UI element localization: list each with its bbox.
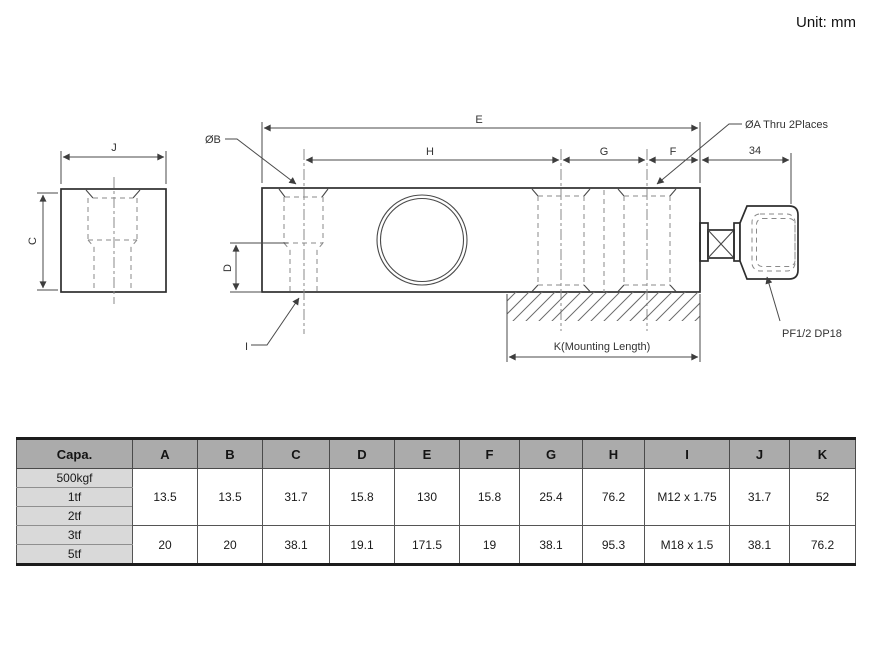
capacity-cell: 5tf (17, 545, 133, 565)
dim-label-k: K(Mounting Length) (554, 341, 651, 353)
value-cell: 130 (395, 469, 460, 526)
table-row: 3tf 20 20 38.1 19.1 171.5 19 38.1 95.3 M… (17, 526, 856, 545)
callout-pf: PF1/2 DP18 (767, 277, 842, 340)
col-header-i: I (645, 439, 730, 469)
value-cell: 31.7 (730, 469, 790, 526)
callout-label-i: I (245, 341, 248, 353)
technical-drawing: J C (0, 0, 870, 430)
datasheet-page: Unit: mm J C (0, 0, 870, 652)
value-cell: 76.2 (583, 469, 645, 526)
value-cell: 31.7 (263, 469, 330, 526)
value-cell: 95.3 (583, 526, 645, 565)
col-header-j: J (730, 439, 790, 469)
value-cell: 76.2 (790, 526, 856, 565)
dim-label-h: H (426, 146, 434, 158)
callout-label-pf: PF1/2 DP18 (782, 328, 842, 340)
value-cell: 52 (790, 469, 856, 526)
dim-label-g: G (600, 146, 609, 158)
dimension-e: E (262, 114, 700, 183)
dim-label-34: 34 (749, 145, 761, 157)
dimension-34: 34 (702, 145, 791, 204)
col-header-d: D (330, 439, 395, 469)
dim-label-e: E (475, 114, 482, 126)
callout-oa: ØA Thru 2Places (657, 119, 828, 184)
value-cell: 15.8 (460, 469, 520, 526)
side-view (262, 149, 725, 334)
capacity-cell: 2tf (17, 507, 133, 526)
left-end-view: J C (27, 142, 166, 304)
col-header-capa: Capa. (17, 439, 133, 469)
value-cell: 38.1 (730, 526, 790, 565)
col-header-g: G (520, 439, 583, 469)
value-cell: M12 x 1.75 (645, 469, 730, 526)
dimension-f: F (649, 146, 698, 160)
callout-ob: ØB (205, 134, 296, 184)
dim-label-f: F (670, 146, 677, 158)
dimension-g: G (563, 146, 645, 160)
cable-connector (700, 206, 798, 279)
dimension-c: C (27, 193, 58, 290)
value-cell: 20 (198, 526, 263, 565)
dimension-k: K(Mounting Length) (507, 294, 700, 362)
value-cell: 15.8 (330, 469, 395, 526)
dimension-table: Capa. A B C D E F G H I J K 500kgf 13.5 … (16, 437, 856, 566)
callout-i: I (245, 298, 299, 353)
callout-label-oa: ØA Thru 2Places (745, 119, 828, 131)
value-cell: 19 (460, 526, 520, 565)
capacity-cell: 500kgf (17, 469, 133, 488)
col-header-b: B (198, 439, 263, 469)
col-header-c: C (263, 439, 330, 469)
col-header-k: K (790, 439, 856, 469)
capacity-cell: 3tf (17, 526, 133, 545)
dim-label-c: C (27, 237, 39, 245)
value-cell: 38.1 (520, 526, 583, 565)
dim-label-d: D (222, 264, 234, 272)
value-cell: 13.5 (198, 469, 263, 526)
col-header-h: H (583, 439, 645, 469)
value-cell: 20 (133, 526, 198, 565)
value-cell: 171.5 (395, 526, 460, 565)
hatching (486, 291, 725, 322)
value-cell: 19.1 (330, 526, 395, 565)
value-cell: 13.5 (133, 469, 198, 526)
dim-label-j: J (111, 142, 117, 154)
dimension-h: H (306, 146, 559, 160)
col-header-a: A (133, 439, 198, 469)
value-cell: M18 x 1.5 (645, 526, 730, 565)
capacity-cell: 1tf (17, 488, 133, 507)
table-header-row: Capa. A B C D E F G H I J K (17, 439, 856, 469)
table-row: 500kgf 13.5 13.5 31.7 15.8 130 15.8 25.4… (17, 469, 856, 488)
callout-label-ob: ØB (205, 134, 221, 146)
unit-note: Unit: mm (796, 14, 856, 31)
col-header-e: E (395, 439, 460, 469)
value-cell: 38.1 (263, 526, 330, 565)
value-cell: 25.4 (520, 469, 583, 526)
col-header-f: F (460, 439, 520, 469)
